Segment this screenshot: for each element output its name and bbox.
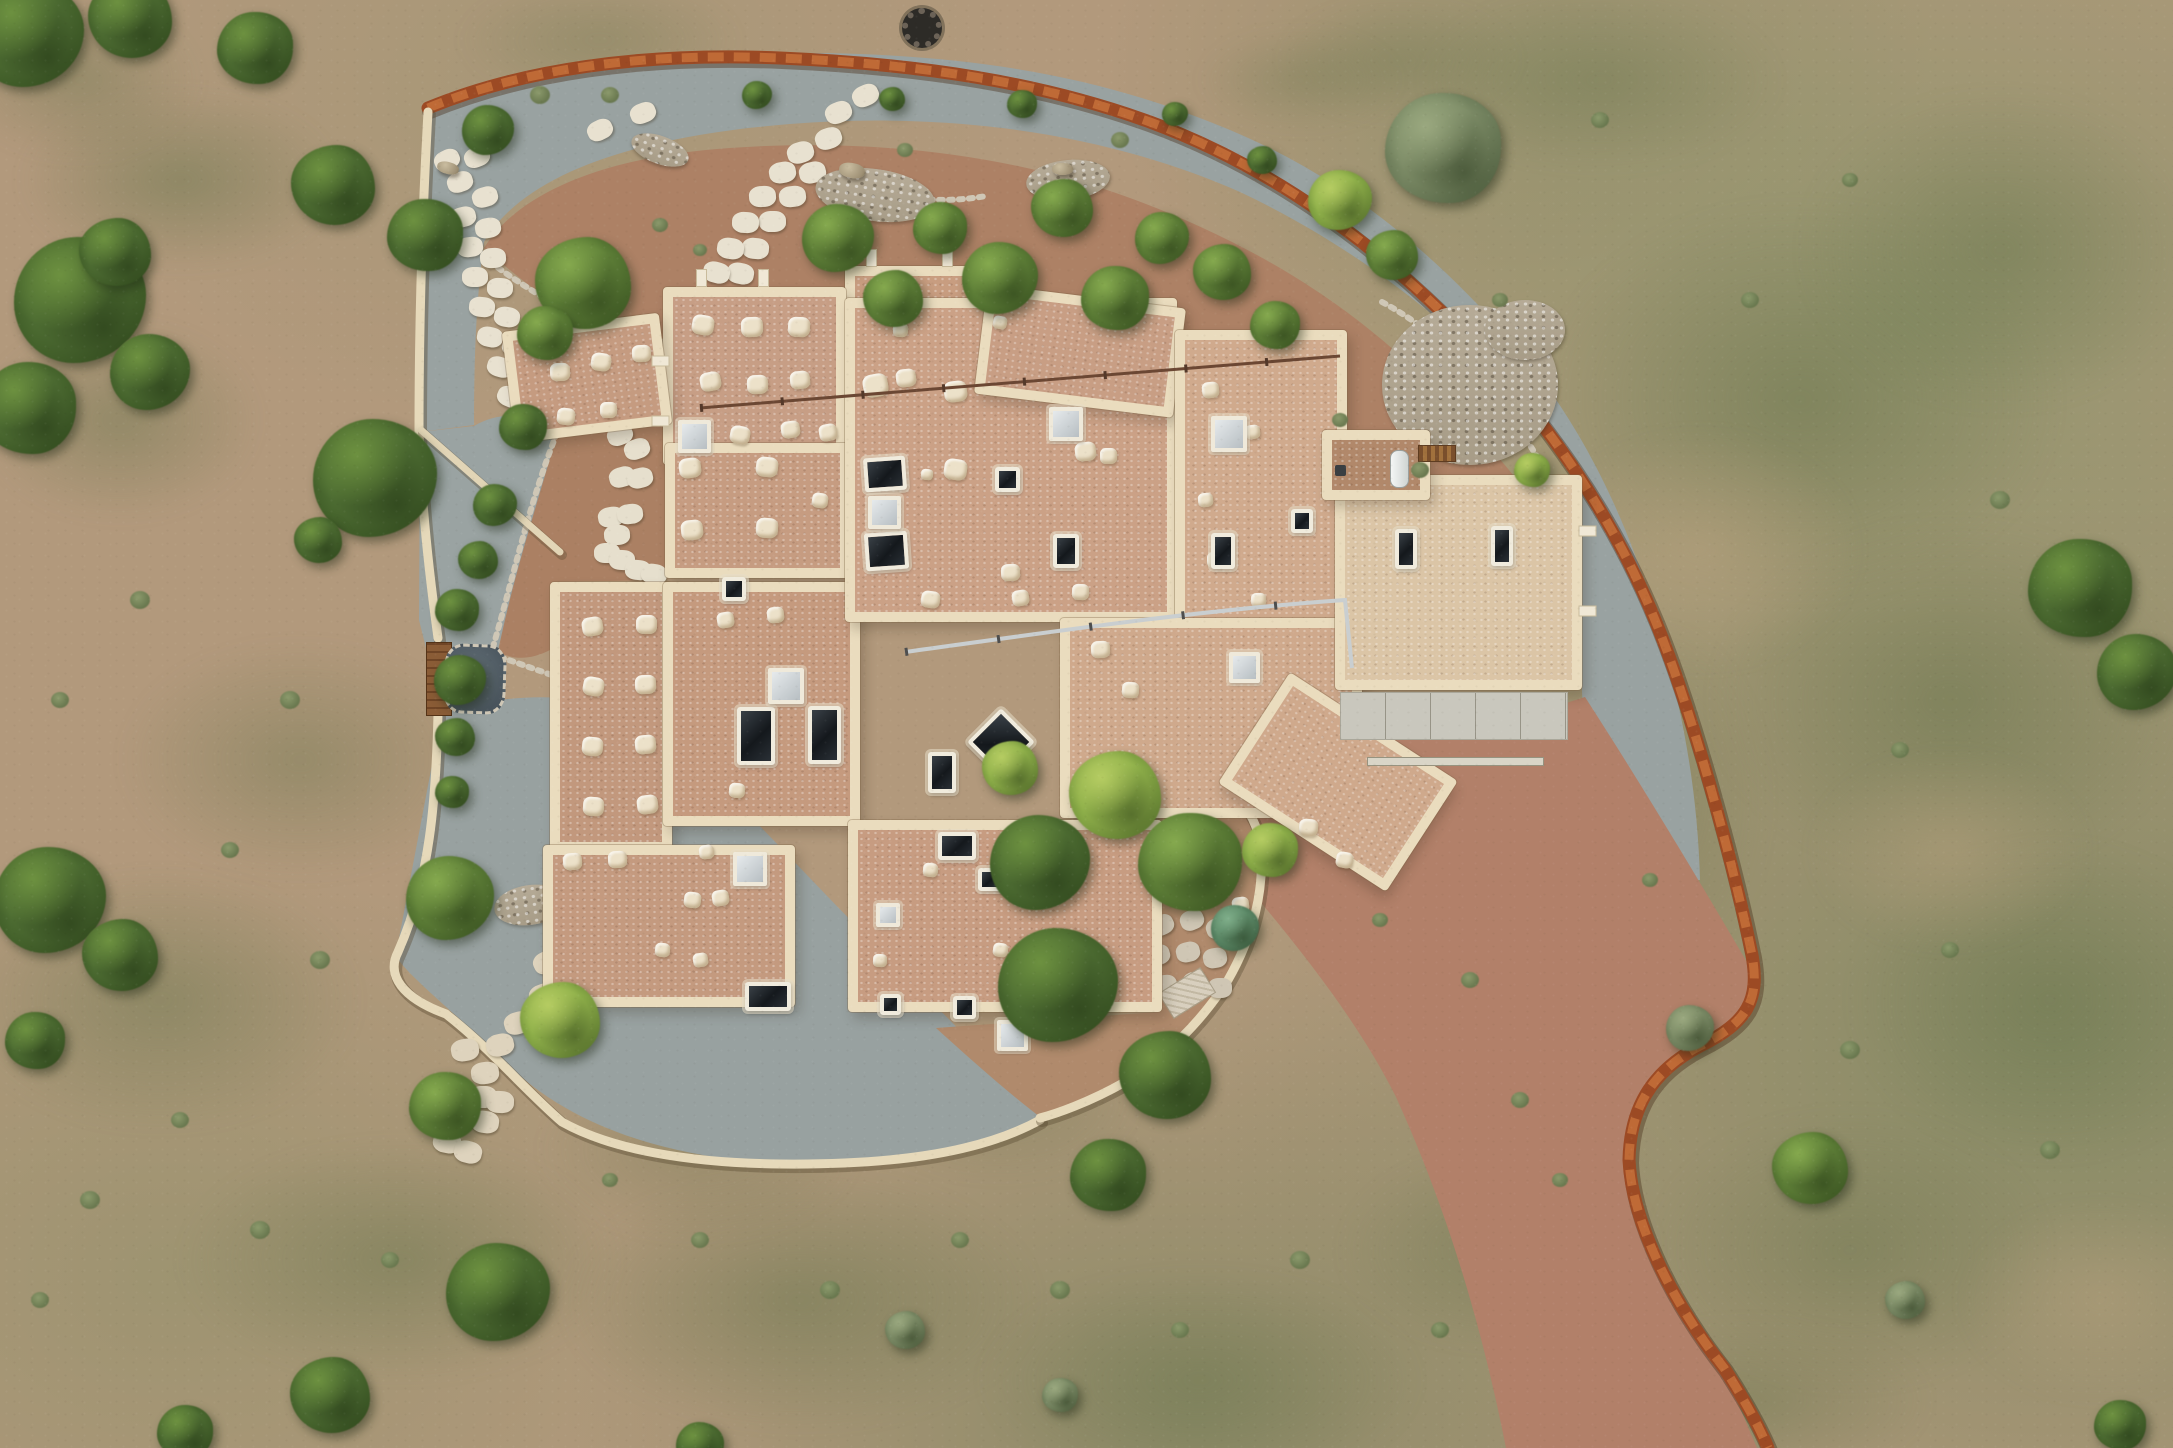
roof-vent xyxy=(550,362,571,381)
skylight-dark xyxy=(722,577,746,601)
roof-scupper xyxy=(651,356,669,367)
shrub xyxy=(1842,173,1858,187)
roof-vent xyxy=(581,676,605,699)
scrub-patch xyxy=(1540,430,1860,670)
tree xyxy=(2094,1400,2146,1448)
shrub xyxy=(280,691,300,709)
roof-wing-southwest xyxy=(550,582,672,852)
tree xyxy=(291,145,375,225)
stepping-stone xyxy=(609,550,636,571)
scrub-patch xyxy=(540,1060,860,1240)
skylight-glass xyxy=(768,668,804,704)
tree xyxy=(1385,93,1501,203)
stepping-stone xyxy=(447,1080,476,1104)
shrub xyxy=(1431,1322,1449,1338)
skylight-dark xyxy=(863,531,909,572)
stepping-stone xyxy=(469,1086,497,1108)
skylight-glass xyxy=(997,1020,1028,1051)
shrub xyxy=(1372,913,1388,927)
roof-wing-northeast xyxy=(974,284,1186,418)
roof-vent xyxy=(892,323,907,337)
shrub xyxy=(1941,942,1959,958)
stepping-stone xyxy=(448,1105,478,1129)
tree xyxy=(1070,1139,1146,1211)
stepping-stone xyxy=(486,1091,515,1114)
roof-vent xyxy=(556,407,576,425)
skylight-dark xyxy=(745,982,791,1011)
stepping-stone xyxy=(475,325,504,350)
tree xyxy=(885,1311,925,1349)
tree xyxy=(1031,179,1093,238)
tree xyxy=(290,1357,370,1433)
stepping-stone xyxy=(470,1109,501,1135)
roof-vent xyxy=(755,517,778,539)
roof-vent xyxy=(1000,564,1020,582)
tree xyxy=(462,105,514,154)
tree xyxy=(0,847,106,953)
skylight-glass xyxy=(733,852,767,886)
roof-vent xyxy=(1298,818,1318,837)
stepping-stone xyxy=(700,259,731,286)
stucco-wall-entry-court-shadow xyxy=(1042,765,1263,1121)
shrub xyxy=(951,1232,969,1248)
tree xyxy=(1119,1031,1211,1118)
stucco-wall-patio-stub xyxy=(421,430,560,552)
skylight-glass xyxy=(1211,416,1247,452)
scrub-patch xyxy=(120,640,480,880)
stepping-stone xyxy=(616,502,644,525)
roof-vent xyxy=(1206,552,1223,568)
tree xyxy=(990,815,1090,910)
stucco-wall-patio-stub-shadow xyxy=(423,433,562,555)
shrub xyxy=(652,218,668,232)
shrub xyxy=(1492,293,1508,307)
tree xyxy=(1514,453,1550,487)
stepping-stone xyxy=(1203,915,1232,942)
tree xyxy=(1366,230,1418,279)
tree xyxy=(434,655,486,704)
skylight-dark xyxy=(863,456,907,493)
river-rock-pile xyxy=(627,127,693,174)
tree xyxy=(435,589,479,631)
roof-scupper xyxy=(866,249,877,267)
gravel-path-west xyxy=(419,416,557,712)
scrub-patch xyxy=(20,90,340,270)
gravel-yard-north xyxy=(420,53,1700,880)
boulder xyxy=(444,655,476,681)
tree xyxy=(294,517,342,563)
roof-vent xyxy=(992,314,1008,329)
scrub-patch xyxy=(980,1270,1420,1448)
stepping-stone xyxy=(530,946,565,978)
roof-vent xyxy=(692,952,709,968)
boulder xyxy=(1052,163,1073,175)
roof-wing-northwest xyxy=(663,287,846,465)
roof-vent xyxy=(680,519,704,541)
utility-courtyard xyxy=(1322,430,1430,500)
roof-vent xyxy=(746,375,768,395)
roof-vent xyxy=(1334,851,1353,869)
stepping-stone xyxy=(1177,906,1207,934)
stepping-stone xyxy=(812,124,844,153)
stepping-stone xyxy=(470,1060,500,1085)
roof-vent xyxy=(992,942,1009,958)
shrub xyxy=(1891,742,1909,758)
shrub xyxy=(1990,491,2010,509)
skylight-dark xyxy=(1491,526,1513,566)
skylight-dark xyxy=(880,994,901,1015)
roof-vent xyxy=(779,420,800,440)
roof-vent xyxy=(683,891,702,909)
tree xyxy=(14,237,146,362)
roof-vent xyxy=(861,372,890,399)
entry-gate-mat xyxy=(1158,967,1216,1019)
roof-vent xyxy=(789,370,811,390)
stepping-stone xyxy=(502,1009,535,1038)
scrub-patch xyxy=(1710,520,2173,880)
scrub-patch xyxy=(1850,840,2173,1160)
roof-vent xyxy=(1074,441,1097,462)
stone-wall-perimeter-texture xyxy=(428,57,1768,1448)
skylight-dark xyxy=(1053,534,1079,568)
shrub xyxy=(691,1232,709,1248)
fire-pit xyxy=(902,8,942,48)
stone-wall-perimeter-shadow xyxy=(430,60,1770,1448)
stepping-stone xyxy=(461,143,493,171)
stepping-stone xyxy=(627,392,659,421)
stucco-wall-west xyxy=(394,112,1040,1164)
roof-vent xyxy=(818,422,839,441)
shrub xyxy=(602,1173,618,1187)
stepping-stone xyxy=(603,524,630,546)
roof-vent xyxy=(635,794,658,816)
tree xyxy=(406,856,494,940)
stepping-stone xyxy=(1201,946,1228,970)
vegetation-layer xyxy=(0,0,2173,1448)
tree xyxy=(435,776,469,808)
roof-vent xyxy=(942,458,968,482)
stepping-stone xyxy=(604,421,636,449)
roof-vent xyxy=(1011,856,1032,876)
stepping-stone xyxy=(1208,978,1232,998)
stepping-stone xyxy=(470,184,501,210)
tree xyxy=(1042,1378,1078,1412)
tree xyxy=(157,1405,213,1448)
desert-scrub-layer xyxy=(0,0,2173,1448)
tree xyxy=(1211,905,1259,951)
shrub xyxy=(601,87,619,103)
shrub xyxy=(221,842,239,858)
roof-vent xyxy=(1244,424,1260,439)
house-roof-layer xyxy=(0,0,2173,1448)
tree xyxy=(1162,102,1188,127)
water-heater xyxy=(1390,450,1409,488)
tree xyxy=(1250,301,1300,349)
stepping-stone xyxy=(822,97,855,127)
shrub xyxy=(693,244,707,257)
roof-vent xyxy=(766,606,785,623)
entry-courtyard xyxy=(936,764,1259,1117)
tree xyxy=(217,12,293,84)
skylight-dark xyxy=(978,868,1001,891)
tree xyxy=(1138,813,1242,912)
shrub xyxy=(381,1252,399,1268)
roof-vent xyxy=(873,953,888,967)
stepping-stone xyxy=(741,236,770,259)
roof-wing-garage xyxy=(1335,475,1582,690)
tree xyxy=(1247,146,1277,175)
tree xyxy=(110,334,190,410)
gravel-court-southwest xyxy=(396,697,1040,1163)
roof-vent xyxy=(919,590,940,610)
river-rock-pile xyxy=(1485,300,1565,360)
garage-concrete-apron xyxy=(1340,692,1568,740)
roof-detail-layer xyxy=(0,0,2173,1448)
shrub xyxy=(530,86,550,104)
scrub-patch xyxy=(1960,1200,2173,1400)
tree xyxy=(962,242,1038,314)
stepping-stone xyxy=(731,211,759,233)
stepping-stone xyxy=(494,383,526,412)
stepping-stone xyxy=(627,99,659,127)
shrub xyxy=(2040,1141,2060,1159)
stepping-stone xyxy=(784,138,816,166)
scrub-patch xyxy=(1530,620,1770,980)
roof-vent xyxy=(635,615,656,635)
stepping-stone xyxy=(493,305,522,328)
roof-vent xyxy=(582,797,604,818)
tree xyxy=(520,982,600,1058)
stepping-stone xyxy=(468,296,496,318)
shrub xyxy=(1050,1281,1070,1299)
scrub-patch xyxy=(0,870,360,1130)
roof-pipe-north-couplings xyxy=(700,356,1340,408)
stepping-stone xyxy=(431,145,463,174)
shrub xyxy=(1741,292,1759,308)
tree xyxy=(499,404,547,450)
roof-wing-great-room xyxy=(845,298,1177,622)
stepping-stone xyxy=(715,236,745,261)
stepping-stone xyxy=(456,235,484,258)
driveway-drain-grate xyxy=(1367,757,1544,766)
roof-vent xyxy=(698,844,714,859)
shrub xyxy=(31,1292,49,1308)
tree xyxy=(1069,751,1161,838)
stepping-stone xyxy=(448,204,478,229)
tree xyxy=(0,0,84,87)
river-rock-pile xyxy=(1382,305,1558,465)
boulder xyxy=(436,160,460,177)
roof-vent xyxy=(1036,860,1056,879)
scrub-patch xyxy=(1810,750,2090,950)
roof-vent xyxy=(1100,448,1117,464)
roof-pipe-south xyxy=(905,600,1352,668)
stepping-stone xyxy=(526,980,560,1010)
tree xyxy=(1666,1005,1714,1051)
scrub-patch xyxy=(1800,90,2173,410)
roof-vent xyxy=(728,782,745,798)
photo-grain-overlay xyxy=(0,0,2173,1448)
tree xyxy=(1885,1281,1925,1319)
roof-vent xyxy=(729,424,752,446)
tree xyxy=(802,204,874,272)
tree xyxy=(88,0,172,58)
skylight-dark xyxy=(953,996,976,1019)
stepping-stone xyxy=(594,543,620,563)
shrub xyxy=(1642,873,1658,887)
tree xyxy=(1007,90,1037,119)
stepping-stone xyxy=(1152,974,1178,997)
shrub xyxy=(80,1191,100,1209)
river-rock-pile xyxy=(492,880,569,930)
stepping-stone xyxy=(1174,940,1202,965)
scrub-patch xyxy=(0,0,200,160)
tree xyxy=(313,419,437,537)
tree xyxy=(446,1243,550,1342)
scrub-patch xyxy=(1500,870,1700,1030)
stepping-stone xyxy=(640,562,669,585)
scrub-patch xyxy=(860,1020,1140,1180)
stepping-stone xyxy=(449,1037,480,1064)
skylight-glass xyxy=(678,420,711,453)
stepping-stone xyxy=(479,247,506,269)
shrub xyxy=(1591,112,1609,128)
shrub xyxy=(1290,1251,1310,1269)
roof-vent xyxy=(811,492,829,509)
shrub xyxy=(310,951,330,969)
rock-border-top xyxy=(822,176,986,200)
skylight-dark xyxy=(928,752,956,793)
roof-vent xyxy=(1197,492,1213,507)
skylight-dark xyxy=(938,832,976,860)
shrub xyxy=(820,1281,840,1299)
rock-border-west xyxy=(493,433,557,647)
roof-scupper xyxy=(758,269,769,287)
roof-vent xyxy=(1231,896,1250,914)
roof-vent xyxy=(741,316,764,337)
stepping-stone xyxy=(625,465,655,490)
tree xyxy=(79,218,151,286)
rock-border-east xyxy=(1382,302,1545,470)
stepping-stone xyxy=(500,334,530,360)
tree xyxy=(1135,212,1189,263)
tree xyxy=(2097,634,2173,710)
stepping-stone xyxy=(487,278,514,299)
tree xyxy=(435,718,475,756)
stucco-wall-west-shadow xyxy=(396,115,1042,1167)
mechanical-unit xyxy=(1335,465,1346,476)
scrub-patch xyxy=(1650,1110,2050,1390)
shrub xyxy=(897,143,913,157)
roof-scupper xyxy=(1578,526,1596,537)
roof-vent xyxy=(1090,641,1110,659)
stepping-stone xyxy=(553,965,587,996)
roof-vent xyxy=(607,851,627,869)
tree xyxy=(458,541,498,579)
skylight-glass xyxy=(876,903,900,927)
skylight-dark xyxy=(1211,533,1235,569)
roof-pipe-south-clamps xyxy=(905,600,1345,652)
roof-vent xyxy=(922,862,938,877)
skylight-dark xyxy=(1291,509,1313,533)
scrub-patch xyxy=(1570,1320,1930,1448)
tree xyxy=(742,81,772,110)
roof-scupper xyxy=(1578,606,1596,617)
roof-wing-south xyxy=(543,845,795,1007)
roof-wing-center-south xyxy=(663,582,860,826)
scrub-patch xyxy=(1200,30,1400,130)
scrub-patch xyxy=(560,1170,1040,1430)
shrub xyxy=(250,1221,270,1239)
stepping-stone xyxy=(796,159,827,186)
river-rock-pile xyxy=(1024,156,1112,205)
scrub-patch xyxy=(1540,200,2060,600)
roof-vent xyxy=(1201,381,1220,398)
gravel-band-west xyxy=(498,398,665,658)
roof-vent xyxy=(631,345,651,363)
tree xyxy=(0,362,76,453)
tree xyxy=(409,1072,481,1140)
boulder xyxy=(838,160,866,179)
stepping-stone xyxy=(1144,942,1173,968)
rock-border-court xyxy=(500,657,578,684)
tree xyxy=(517,306,573,359)
roof-vent xyxy=(634,675,656,695)
rock-border-north xyxy=(490,262,662,342)
roof-vent xyxy=(942,380,967,404)
stepping-stone xyxy=(621,435,652,462)
tree xyxy=(1193,244,1251,299)
roof-vent xyxy=(634,734,657,755)
stepping-stone xyxy=(725,260,756,286)
roof-wing-east xyxy=(1175,330,1347,670)
roof-vent xyxy=(1010,589,1029,607)
roof-vent xyxy=(654,942,670,957)
roof-vent xyxy=(580,616,604,638)
stepping-stone xyxy=(517,393,549,422)
aerial-photo: Aerial drone view of pueblo-style adobe … xyxy=(0,0,2173,1448)
stepping-stone xyxy=(758,210,785,231)
shrub xyxy=(51,692,69,708)
stepping-stone xyxy=(462,267,488,287)
skylight-dark xyxy=(995,467,1020,492)
roof-vent xyxy=(690,313,715,337)
skylight-dark xyxy=(808,706,841,764)
stepping-stone xyxy=(767,159,797,184)
scrub-patch xyxy=(1420,0,1780,170)
roof-vent xyxy=(581,736,604,757)
shrub xyxy=(1411,462,1429,478)
roof-vent xyxy=(600,402,617,418)
stepping-stone xyxy=(485,354,516,381)
roof-vent xyxy=(920,469,933,481)
stepping-stone xyxy=(748,185,776,208)
tree xyxy=(473,484,517,526)
roof-vent xyxy=(1071,584,1089,600)
roof-vent xyxy=(710,889,729,907)
roof-vent xyxy=(1251,593,1266,607)
gravel-band-inner xyxy=(484,145,1520,484)
stepping-stone xyxy=(848,80,881,110)
roof-vent xyxy=(698,371,722,394)
tree xyxy=(1308,170,1372,231)
roof-vent xyxy=(1052,942,1068,957)
stepping-stone xyxy=(1147,911,1177,939)
roof-vent xyxy=(895,368,917,389)
shrub xyxy=(1511,1092,1529,1108)
roof-vent xyxy=(715,611,734,629)
tree xyxy=(1772,1132,1848,1204)
